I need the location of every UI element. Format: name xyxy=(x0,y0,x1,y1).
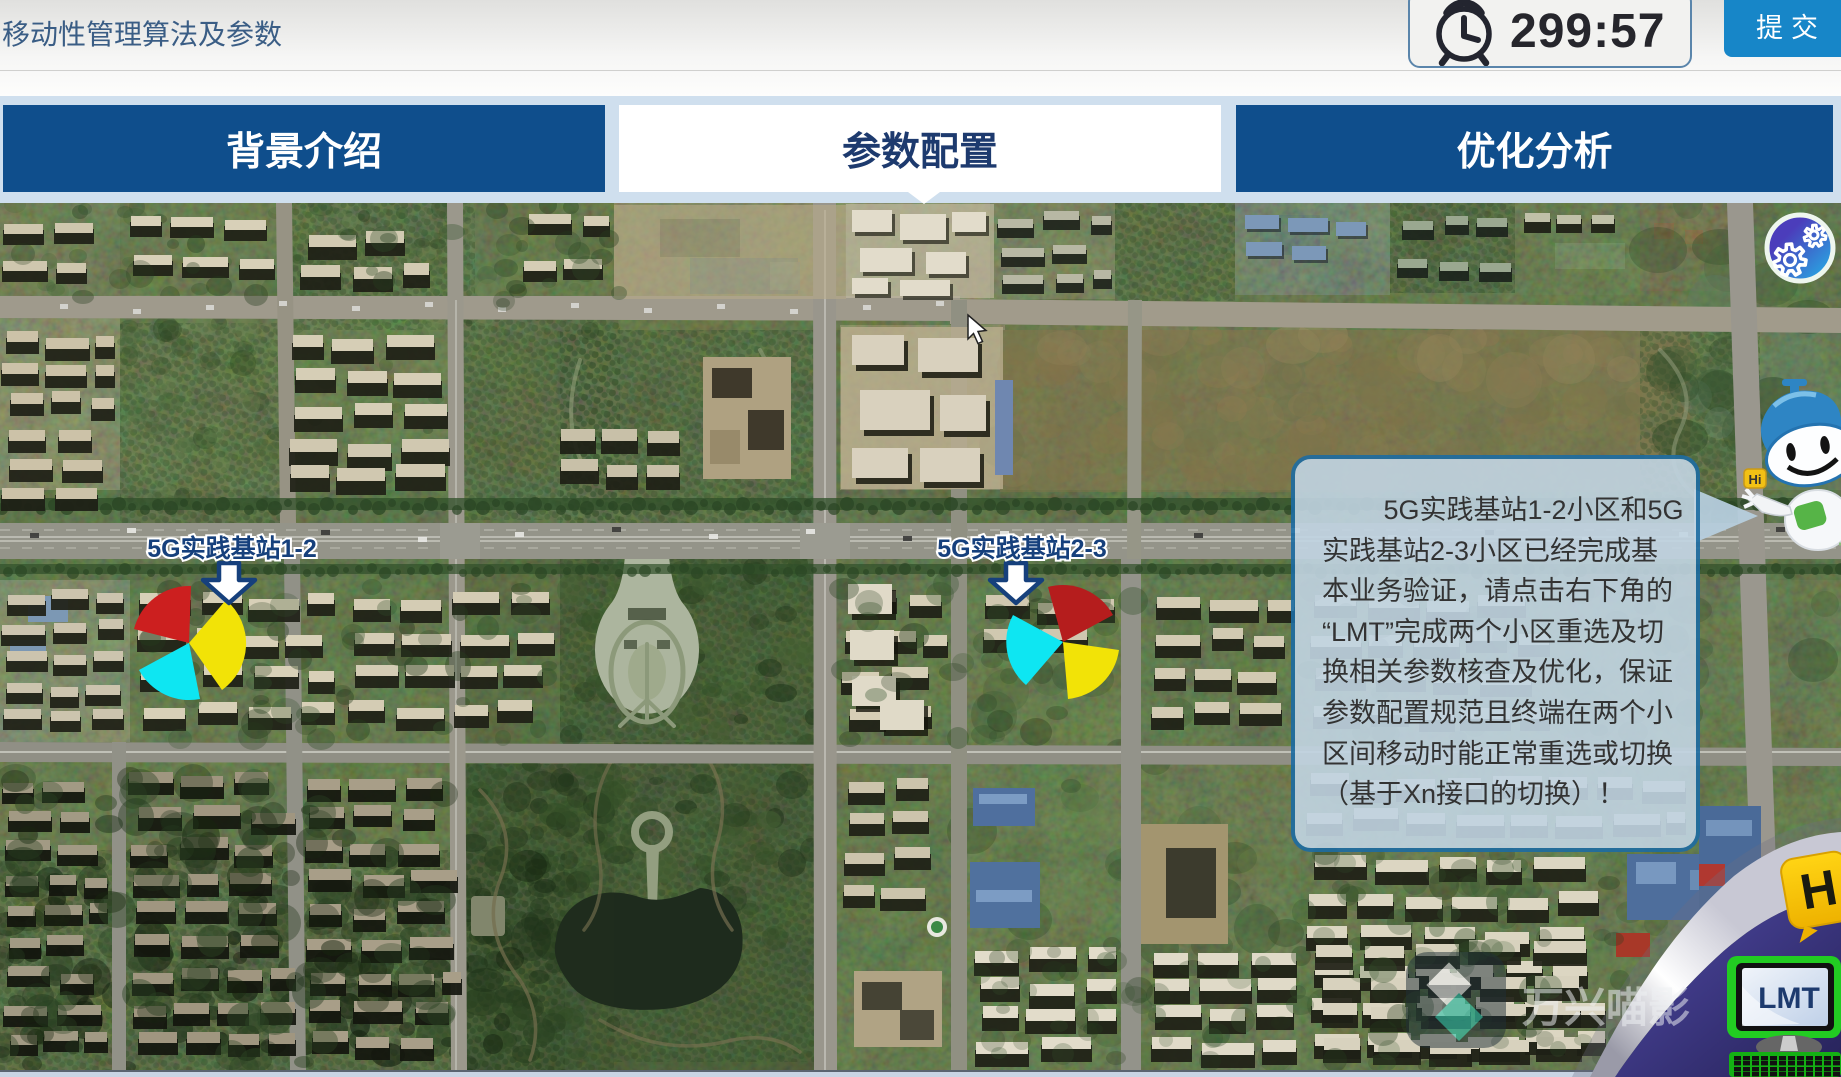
svg-text:（基于Xn接口的切换）！: （基于Xn接口的切换）！ xyxy=(1322,779,1625,809)
svg-text:参数配置规范且终端在两个小: 参数配置规范且终端在两个小 xyxy=(1322,698,1673,728)
svg-text:换相关参数核查及优化，保证: 换相关参数核查及优化，保证 xyxy=(1322,657,1673,687)
svg-text:Hi: Hi xyxy=(1749,472,1762,487)
svg-text:本业务验证，请点击右下角的: 本业务验证，请点击右下角的 xyxy=(1322,576,1673,606)
svg-text:“LMT”完成两个小区重选及切: “LMT”完成两个小区重选及切 xyxy=(1322,617,1664,647)
svg-text:区间移动时能正常重选或切换: 区间移动时能正常重选或切换 xyxy=(1322,739,1673,769)
svg-text:5G实践基站1-2小区和5G: 5G实践基站1-2小区和5G xyxy=(1322,495,1684,525)
svg-text:5G实践基站1-2: 5G实践基站1-2 xyxy=(147,534,316,563)
svg-text:LMT: LMT xyxy=(1758,982,1820,1015)
svg-text:万兴喵影: 万兴喵影 xyxy=(1522,984,1690,1031)
svg-text:实践基站2-3小区已经完成基: 实践基站2-3小区已经完成基 xyxy=(1322,536,1658,566)
svg-text:5G实践基站2-3: 5G实践基站2-3 xyxy=(937,534,1106,563)
